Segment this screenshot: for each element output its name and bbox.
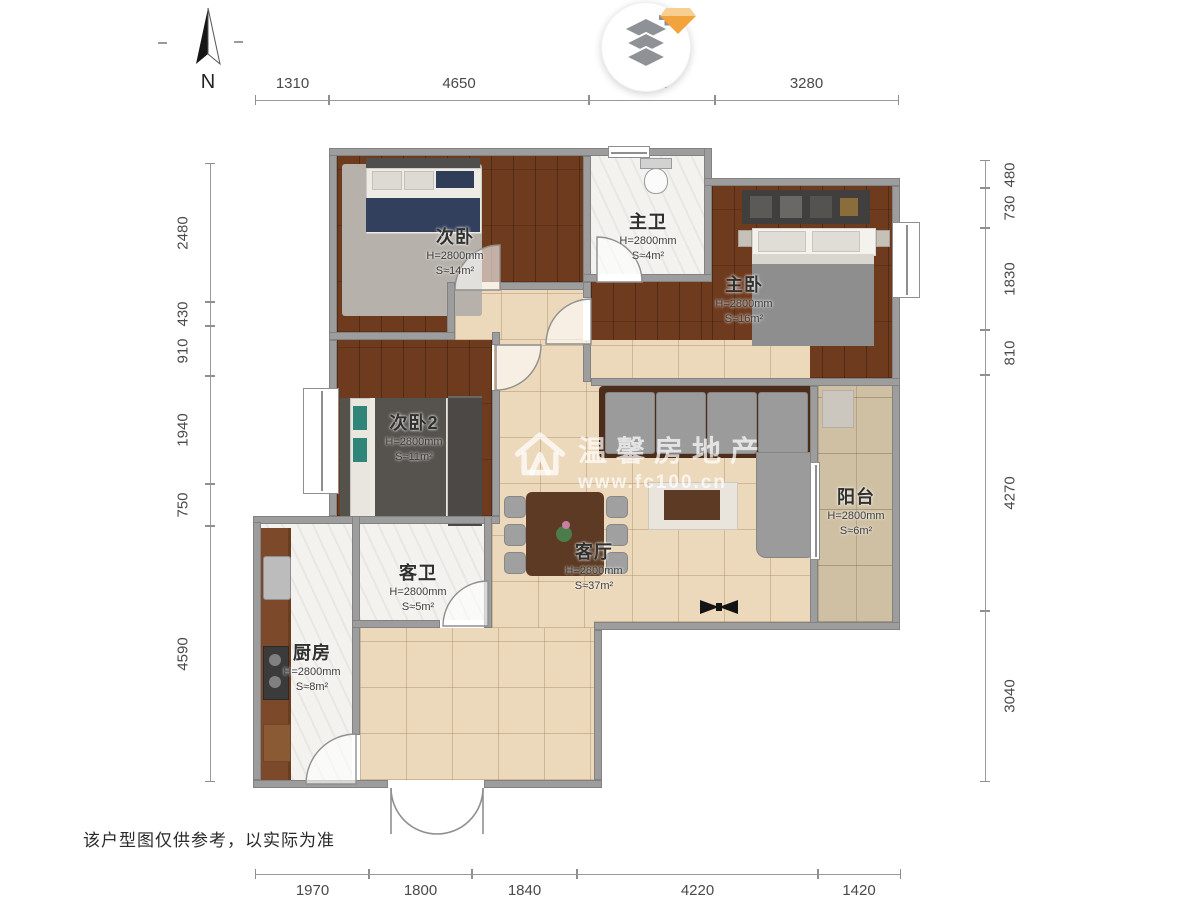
house-logo-icon [512,428,568,478]
nightstand [876,230,890,247]
wall [500,282,591,290]
room-area: S≈8m² [283,680,340,694]
wall [810,386,818,464]
wardrobe-clothes [810,196,832,218]
dining-chair [504,552,526,574]
kitchen-cabinet [263,724,291,762]
wall [591,378,900,386]
coffee-table-top [664,490,720,520]
dining-chair [504,496,526,518]
dim-value: 3280 [790,75,823,92]
dim-segment: 1830 [980,227,990,331]
room-label-balcony: 阳台 H=2800mm S≈6m² [827,486,884,538]
dim-value: 2480 [175,216,192,249]
wall [253,516,500,524]
dim-segment: 1940 [205,375,215,485]
dim-value: 430 [175,301,192,326]
stove-burner [269,676,281,688]
toilet-bowl [644,168,668,194]
dim-value: 1800 [404,882,437,899]
wall [492,332,500,345]
wall [594,622,900,630]
master-bed-fold [752,254,874,264]
dim-value: 3040 [1002,679,1019,712]
room-name: 厨房 [283,642,340,665]
watermark: 温馨房地产 www.fc100.cn [512,428,768,494]
dim-value: 1310 [276,75,309,92]
wall [484,516,492,628]
room-name: 次卧2 [385,412,442,435]
dim-segment: 730 [980,187,990,229]
master-pillow [812,231,860,252]
dim-segment: 910 [205,325,215,377]
dim-value: 1970 [296,882,329,899]
map-edge-dash-left [158,42,167,44]
wardrobe-box [840,198,858,216]
room-height: H=2800mm [385,435,442,449]
dim-value: 480 [1002,162,1019,187]
room-area: S≈37m² [565,579,622,593]
room-label-master-bedroom: 主卧 H=2800mm S≈16m² [715,274,772,326]
room-height: H=2800mm [565,564,622,578]
room-label-living-room: 客厅 H=2800mm S≈37m² [565,541,622,593]
wall [329,332,455,340]
dining-chair [504,524,526,546]
dim-segment: 1840 [471,869,578,879]
bedroom3-headboard [340,398,350,516]
room-area: S≈14m² [426,264,483,278]
wall [583,344,591,382]
wall [253,780,388,788]
room-height: H=2800mm [389,585,446,599]
room-name: 客厅 [565,541,622,564]
floorplan-sheet: N [0,0,1200,900]
wall [704,148,712,282]
table-flower [562,521,570,529]
balcony-sliding-door [810,462,820,560]
master-pillow [758,231,806,252]
dim-value: 1830 [1002,262,1019,295]
dim-segment: 480 [980,160,990,189]
north-label: N [201,71,215,93]
room-height: H=2800mm [827,509,884,523]
dim-value: 810 [1002,340,1019,365]
dim-value: 4650 [442,75,475,92]
dim-segment: 810 [980,329,990,376]
room-label-guest-bath: 客卫 H=2800mm S≈5m² [389,562,446,614]
bedroom3-teal-pillow [353,438,367,462]
dim-value: 4270 [1002,476,1019,509]
room-height: H=2800mm [619,234,676,248]
room-label-bedroom2: 次卧 H=2800mm S≈14m² [426,226,483,278]
diamond-gem-icon [658,2,698,38]
wall [484,780,602,788]
watermark-url: www.fc100.cn [578,472,768,494]
bay-window-master [892,222,920,298]
bedroom2-headboard [366,158,480,168]
room-label-master-bath: 主卫 H=2800mm S≈4m² [619,211,676,263]
room-name: 次卧 [426,226,483,249]
dim-segment: 4270 [980,374,990,612]
room-name: 客卫 [389,562,446,585]
dim-segment: 2480 [205,163,215,303]
bedroom2-pillow [372,171,402,190]
dim-segment: 3040 [980,610,990,782]
wall [583,156,591,282]
dining-chair [606,496,628,518]
dim-segment: 2250 [588,95,716,105]
room-label-kitchen: 厨房 H=2800mm S≈8m² [283,642,340,694]
wardrobe-clothes [780,196,802,218]
dim-segment: 3280 [714,95,899,105]
room-name: 主卫 [619,211,676,234]
dim-segment: 1420 [817,869,901,879]
wall [352,620,440,628]
bedroom2-pillow [404,171,434,190]
room-area: S≈11m² [385,450,442,464]
dim-segment: 4220 [576,869,819,879]
dim-segment: 750 [205,483,215,527]
bedroom3-sheet-fold [370,398,375,516]
wall [810,558,818,630]
floor-entry-corridor [360,628,594,780]
bedroom3-teal-pillow [353,406,367,430]
dim-value: 4590 [175,637,192,670]
dim-segment: 4590 [205,525,215,782]
kitchen-sink [263,556,291,600]
dim-value: 730 [1002,195,1019,220]
room-name: 主卧 [715,274,772,297]
dim-segment: 1800 [368,869,473,879]
dim-value: 1840 [508,882,541,899]
wardrobe-clothes [750,196,772,218]
entrance-door-right-arc [437,788,483,834]
nightstand [738,230,752,247]
room-area: S≈16m² [715,312,772,326]
dim-segment: 4650 [328,95,590,105]
north-arrow-icon: N [178,2,238,106]
dim-value: 4220 [681,882,714,899]
wall [583,282,591,298]
dim-value: 750 [175,492,192,517]
dim-value: 1940 [175,413,192,446]
wall [594,630,602,780]
room-area: S≈5m² [389,600,446,614]
wall [641,274,712,282]
entrance-door-left-arc [391,788,437,834]
watermark-brand: 温馨房地产 [578,428,768,470]
wall [329,148,337,340]
wall [492,390,500,516]
wall [704,178,900,186]
bedroom2-navy-pillow [436,171,474,188]
dim-value: 1420 [842,882,875,899]
dim-value: 910 [175,338,192,363]
wall [253,522,261,780]
bay-window-bedroom3 [303,388,339,494]
dim-segment: 1970 [255,869,370,879]
room-area: S≈6m² [827,524,884,538]
room-height: H=2800mm [715,297,772,311]
wall [329,148,712,156]
room-label-bedroom3: 次卧2 H=2800mm S≈11m² [385,412,442,464]
room-area: S≈4m² [619,249,676,263]
balcony-washer [822,390,854,428]
room-height: H=2800mm [283,665,340,679]
dim-segment: 430 [205,301,215,327]
room-height: H=2800mm [426,249,483,263]
stove-burner [269,654,281,666]
disclaimer-text: 该户型图仅供参考，以实际为准 [83,826,335,851]
room-name: 阳台 [827,486,884,509]
bedroom3-wardrobe [448,396,482,526]
window-master-bath [608,146,650,158]
wall [583,274,597,282]
dim-segment: 1310 [255,95,330,105]
